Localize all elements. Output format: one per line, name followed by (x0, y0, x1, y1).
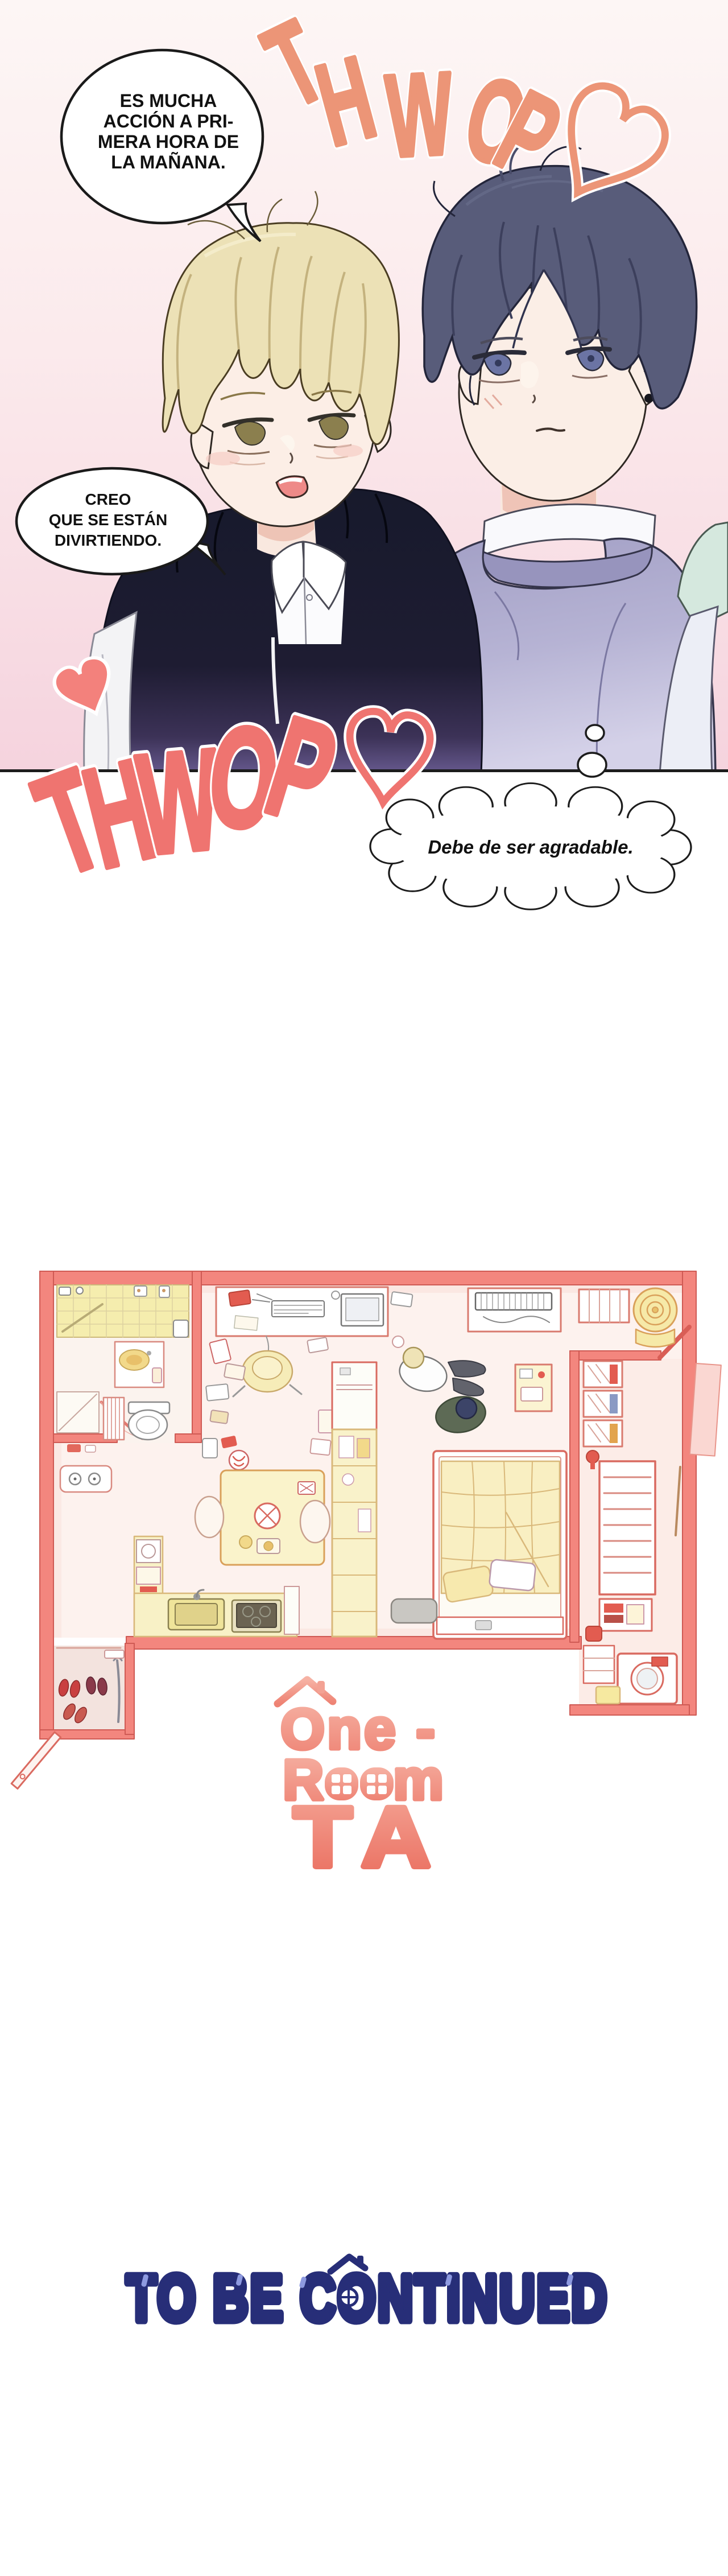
svg-text:DIVIRTIENDO.: DIVIRTIENDO. (55, 531, 162, 549)
svg-text:QUE SE ESTÁN: QUE SE ESTÁN (49, 511, 167, 529)
svg-text:W: W (383, 48, 456, 182)
svg-text:TA: TA (293, 1789, 447, 1883)
svg-text:MERA HORA DE: MERA HORA DE (98, 131, 239, 152)
svg-text:Debe de ser agradable.: Debe de ser agradable. (428, 836, 633, 858)
svg-text:ACCIÓN A PRI-: ACCIÓN A PRI- (104, 111, 234, 131)
svg-text:CREO: CREO (85, 491, 131, 508)
svg-text:TO BE CONTINUED: TO BE CONTINUED (126, 2262, 609, 2335)
svg-text:LA MAÑANA.: LA MAÑANA. (111, 152, 225, 172)
svg-text:ES MUCHA: ES MUCHA (120, 90, 217, 111)
